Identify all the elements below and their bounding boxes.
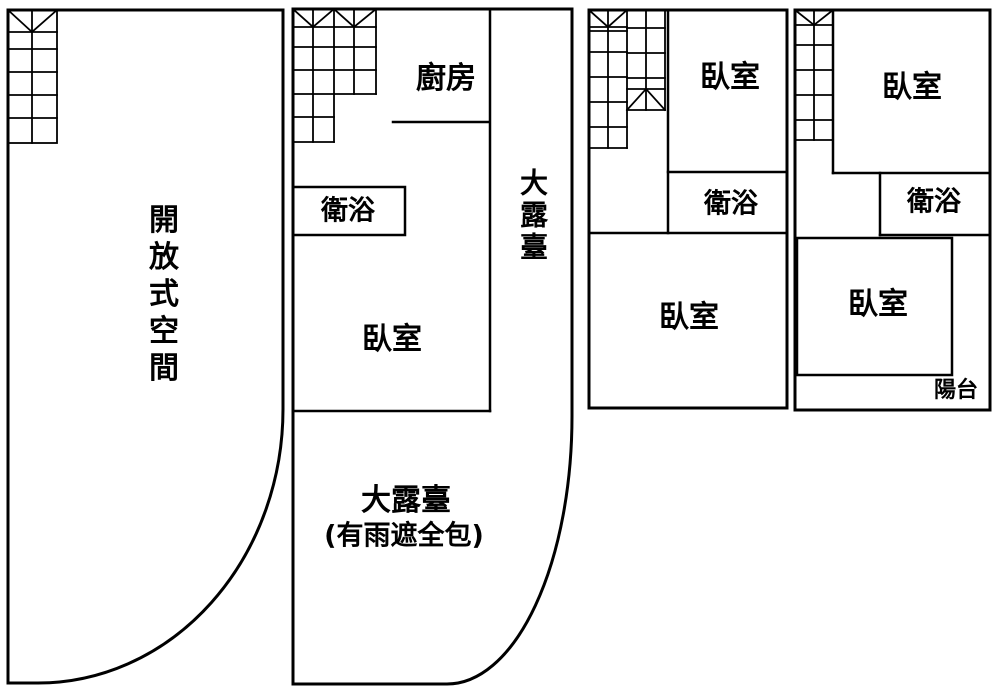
floor3-bedroom-bottom-label: 臥室: [659, 303, 719, 333]
floor1-staircase-icon: [8, 10, 57, 143]
floor2-big-terrace-label-line1: 大露臺: [361, 486, 451, 516]
floor4-bedroom-top-label: 臥室: [882, 73, 942, 103]
floor2-bathroom-label: 衛浴: [321, 198, 375, 225]
floor2-staircase-icon: [293, 9, 376, 142]
floor4-balcony-label: 陽台: [934, 380, 978, 402]
floor2-bedroom-label: 臥室: [362, 325, 422, 355]
floor3-staircase-icon: [589, 10, 665, 148]
floorplan-canvas: 開放式空間 廚房 衛浴 臥室 大露臺 大露臺 (有雨遮全包) 臥室 衛浴 臥室 …: [0, 0, 1000, 697]
floor4-staircase-icon: [795, 10, 833, 140]
floor1-open-space-label: 開放式空間: [145, 204, 175, 389]
floor2-kitchen-label: 廚房: [416, 64, 476, 94]
floor4-bathroom-label: 衛浴: [907, 189, 961, 216]
floor4-inner-bedroom-label: 臥室: [848, 290, 908, 320]
floor3-bedroom-top-label: 臥室: [700, 63, 760, 93]
floor3-bathroom-label: 衛浴: [704, 191, 758, 218]
floor2-side-terrace-label: 大露臺: [518, 168, 546, 264]
floor2-big-terrace-label-line2: (有雨遮全包): [324, 523, 484, 550]
